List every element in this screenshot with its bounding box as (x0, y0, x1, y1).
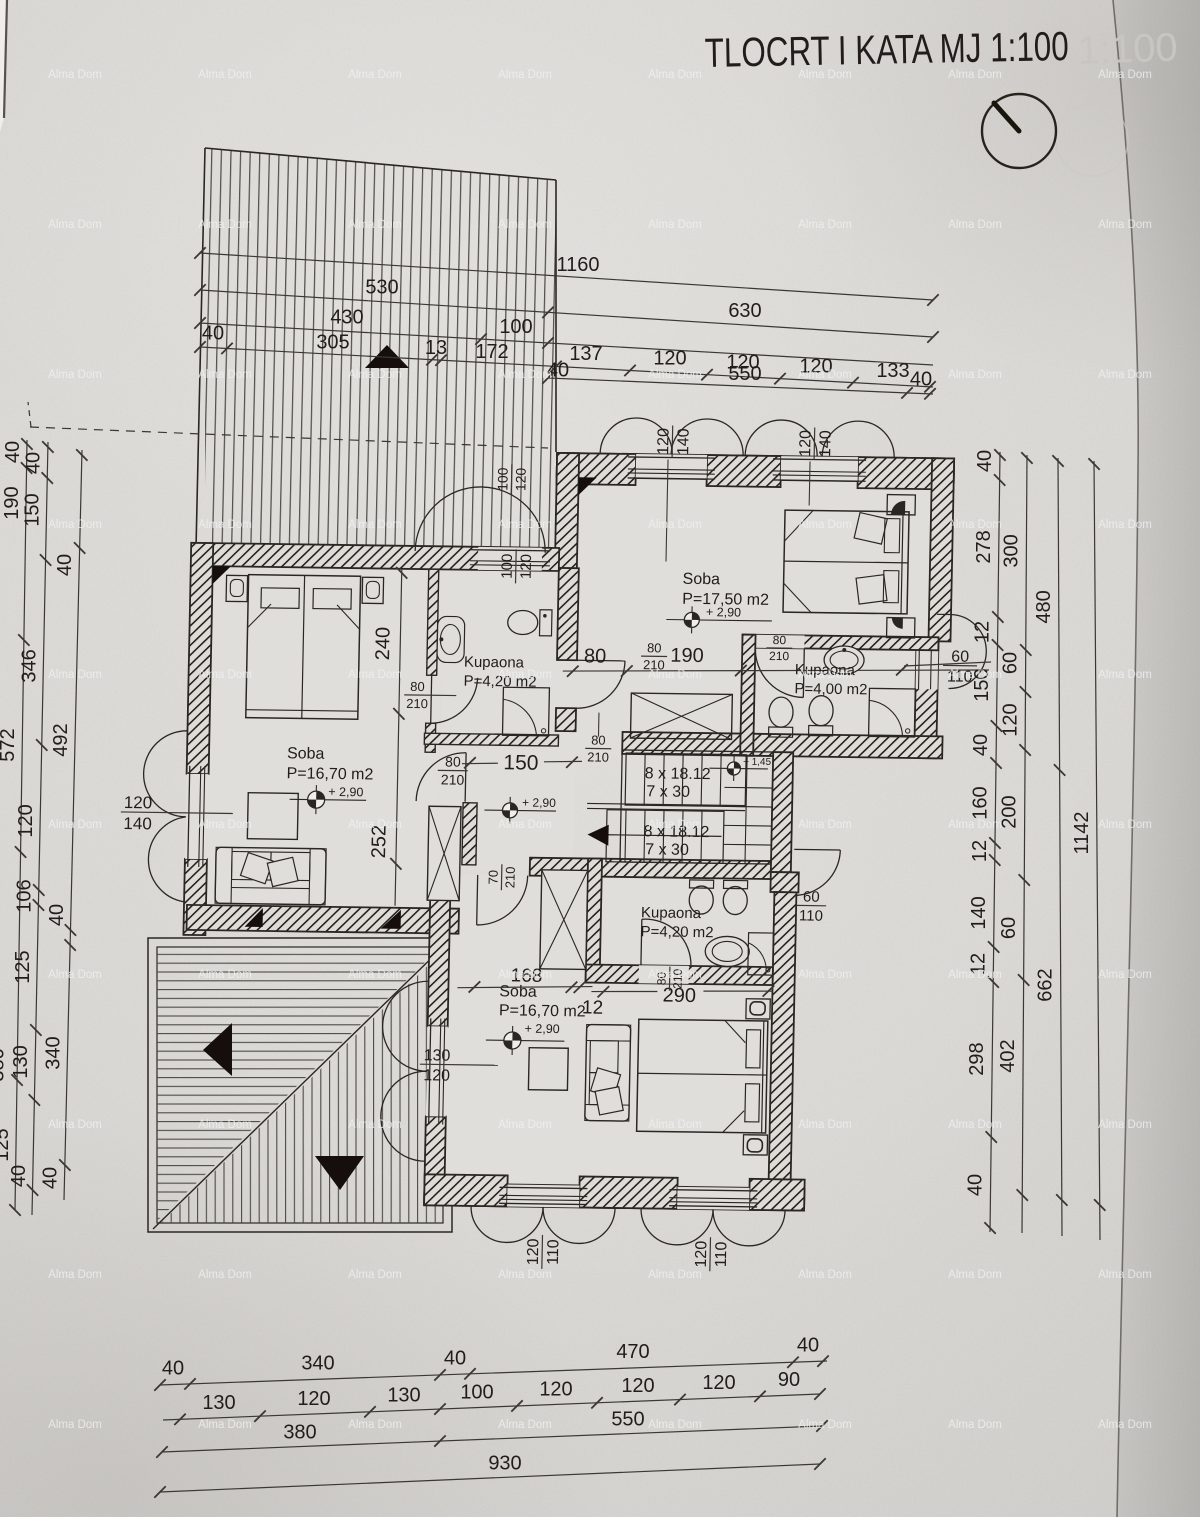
svg-text:120: 120 (512, 467, 528, 491)
svg-text:Alma Dom: Alma Dom (198, 1269, 252, 1281)
svg-text:Alma Dom: Alma Dom (348, 969, 402, 981)
svg-text:140: 140 (968, 896, 990, 929)
svg-text:120: 120 (124, 793, 153, 812)
svg-text:140: 140 (123, 814, 152, 833)
svg-text:172: 172 (475, 341, 508, 363)
svg-text:40: 40 (40, 1167, 62, 1189)
svg-text:40: 40 (202, 323, 224, 345)
svg-text:Alma Dom: Alma Dom (798, 69, 852, 81)
svg-text:130: 130 (202, 1392, 235, 1414)
svg-text:80: 80 (584, 645, 607, 667)
svg-text:80: 80 (773, 633, 787, 647)
svg-text:7 x 30: 7 x 30 (645, 841, 689, 859)
svg-text:Alma Dom: Alma Dom (798, 519, 852, 531)
svg-text:125: 125 (0, 1128, 13, 1161)
svg-text:Alma Dom: Alma Dom (48, 1119, 102, 1131)
svg-text:Alma Dom: Alma Dom (1098, 819, 1152, 831)
svg-text:Alma Dom: Alma Dom (948, 1269, 1002, 1281)
svg-text:125: 125 (12, 950, 34, 983)
svg-text:130: 130 (424, 1047, 451, 1064)
svg-text:305: 305 (316, 331, 349, 353)
svg-text:Alma Dom: Alma Dom (48, 969, 102, 981)
svg-text:550: 550 (728, 363, 761, 385)
svg-text:120: 120 (423, 1067, 450, 1084)
svg-text:Alma Dom: Alma Dom (48, 519, 102, 531)
svg-text:340: 340 (301, 1352, 334, 1374)
svg-text:210: 210 (441, 771, 465, 787)
svg-text:Alma Dom: Alma Dom (648, 1269, 702, 1281)
svg-text:346: 346 (18, 649, 40, 682)
svg-text:Alma Dom: Alma Dom (198, 519, 252, 531)
svg-text:Alma Dom: Alma Dom (798, 1119, 852, 1131)
svg-text:Alma Dom: Alma Dom (48, 819, 102, 831)
svg-text:480: 480 (1033, 590, 1055, 623)
svg-text:Alma Dom: Alma Dom (348, 69, 402, 81)
svg-text:Alma Dom: Alma Dom (198, 369, 252, 381)
svg-text:40: 40 (970, 734, 992, 756)
svg-text:Soba: Soba (499, 983, 537, 1001)
svg-text:Alma Dom: Alma Dom (648, 1419, 702, 1431)
svg-text:190: 190 (1, 486, 23, 519)
svg-text:TLOCRT I KATA MJ 1:100: TLOCRT I KATA MJ 1:100 (704, 23, 1069, 76)
svg-text:120: 120 (15, 804, 37, 837)
svg-text:160: 160 (970, 786, 992, 819)
svg-text:210: 210 (587, 749, 609, 764)
svg-text:Alma Dom: Alma Dom (1098, 69, 1152, 81)
svg-text:120: 120 (999, 703, 1021, 736)
svg-text:Alma Dom: Alma Dom (48, 369, 102, 381)
svg-text:13: 13 (425, 337, 447, 359)
svg-text:100: 100 (499, 554, 516, 579)
svg-text:40: 40 (974, 450, 996, 472)
svg-text:Alma Dom: Alma Dom (198, 969, 252, 981)
svg-text:278: 278 (973, 530, 995, 563)
svg-text:Alma Dom: Alma Dom (48, 1269, 102, 1281)
svg-text:Alma Dom: Alma Dom (498, 369, 552, 381)
svg-text:120: 120 (297, 1388, 330, 1410)
svg-text:Alma Dom: Alma Dom (348, 369, 402, 381)
svg-text:Alma Dom: Alma Dom (48, 219, 102, 231)
svg-text:1:100: 1:100 (1077, 26, 1179, 73)
svg-text:133: 133 (876, 360, 909, 382)
svg-text:Alma Dom: Alma Dom (948, 1119, 1002, 1131)
svg-text:110: 110 (713, 1241, 731, 1267)
svg-text:Soba: Soba (682, 571, 720, 589)
svg-text:Alma Dom: Alma Dom (498, 1269, 552, 1281)
svg-text:662: 662 (1035, 968, 1057, 1001)
svg-text:298: 298 (966, 1042, 988, 1075)
svg-text:137: 137 (569, 343, 602, 365)
svg-text:930: 930 (488, 1452, 521, 1474)
svg-text:Alma Dom: Alma Dom (198, 1119, 252, 1131)
svg-text:Alma Dom: Alma Dom (648, 519, 702, 531)
svg-text:Alma Dom: Alma Dom (498, 669, 552, 681)
svg-text:40: 40 (8, 1165, 30, 1187)
svg-text:240: 240 (372, 627, 395, 661)
svg-text:120: 120 (655, 428, 673, 455)
svg-text:80: 80 (647, 640, 662, 655)
svg-text:12: 12 (969, 840, 991, 862)
svg-text:1160: 1160 (556, 254, 599, 276)
svg-text:80: 80 (410, 679, 425, 694)
svg-text:200: 200 (999, 795, 1021, 828)
svg-text:70: 70 (485, 870, 500, 885)
svg-text:Alma Dom: Alma Dom (48, 669, 102, 681)
svg-text:120: 120 (797, 430, 815, 457)
svg-text:Alma Dom: Alma Dom (1098, 369, 1152, 381)
svg-text:40: 40 (965, 1174, 987, 1196)
svg-text:Alma Dom: Alma Dom (948, 69, 1002, 81)
svg-text:8 x 18.12: 8 x 18.12 (645, 765, 711, 783)
svg-text:Alma Dom: Alma Dom (948, 819, 1002, 831)
svg-text:Alma Dom: Alma Dom (48, 69, 102, 81)
svg-text:P=16,70 m2: P=16,70 m2 (286, 765, 373, 783)
svg-text:530: 530 (365, 277, 398, 299)
svg-text:Alma Dom: Alma Dom (948, 669, 1002, 681)
svg-text:380: 380 (0, 1048, 8, 1081)
svg-text:1142: 1142 (1071, 811, 1093, 854)
svg-text:110: 110 (545, 1239, 563, 1265)
svg-text:Alma Dom: Alma Dom (348, 519, 402, 531)
svg-text:40: 40 (46, 904, 68, 926)
svg-text:Alma Dom: Alma Dom (1098, 669, 1152, 681)
svg-text:340: 340 (43, 1036, 65, 1069)
svg-text:100: 100 (494, 467, 510, 491)
svg-text:P=4,00 m2: P=4,00 m2 (794, 680, 867, 698)
svg-text:40: 40 (23, 452, 45, 474)
svg-text:Soba: Soba (287, 745, 325, 763)
svg-text:120: 120 (693, 1241, 711, 1268)
svg-text:Alma Dom: Alma Dom (648, 1119, 702, 1131)
svg-text:Alma Dom: Alma Dom (948, 219, 1002, 231)
svg-text:40: 40 (910, 369, 932, 391)
svg-text:+ 2,90: + 2,90 (706, 605, 741, 619)
svg-text:Alma Dom: Alma Dom (798, 219, 852, 231)
svg-text:Alma Dom: Alma Dom (648, 369, 702, 381)
svg-text:120: 120 (653, 348, 686, 370)
svg-text:40: 40 (2, 441, 24, 463)
svg-text:Alma Dom: Alma Dom (948, 1419, 1002, 1431)
svg-text:100: 100 (460, 1382, 493, 1404)
svg-text:100: 100 (499, 316, 532, 338)
svg-text:106: 106 (14, 879, 36, 912)
svg-text:Alma Dom: Alma Dom (798, 669, 852, 681)
svg-text:12: 12 (972, 621, 994, 643)
svg-text:Alma Dom: Alma Dom (798, 969, 852, 981)
svg-text:Alma Dom: Alma Dom (798, 369, 852, 381)
svg-text:380: 380 (283, 1422, 316, 1444)
svg-text:Alma Dom: Alma Dom (198, 1419, 252, 1431)
svg-text:300: 300 (1000, 534, 1022, 567)
svg-text:Alma Dom: Alma Dom (198, 69, 252, 81)
svg-text:+ 2,90: + 2,90 (328, 785, 363, 799)
svg-text:Alma Dom: Alma Dom (498, 69, 552, 81)
svg-text:7 x 30: 7 x 30 (646, 783, 690, 801)
svg-text:P=16,70 m2: P=16,70 m2 (499, 1002, 586, 1020)
svg-text:120: 120 (621, 1375, 654, 1397)
svg-text:210: 210 (406, 696, 428, 711)
svg-text:Alma Dom: Alma Dom (498, 969, 552, 981)
svg-text:Alma Dom: Alma Dom (1098, 219, 1152, 231)
svg-text:40: 40 (444, 1347, 466, 1369)
svg-text:+ 1,45: + 1,45 (743, 757, 772, 768)
svg-text:60: 60 (803, 888, 820, 905)
svg-text:Alma Dom: Alma Dom (498, 1419, 552, 1431)
svg-text:Alma Dom: Alma Dom (948, 969, 1002, 981)
svg-text:+ 2,90: + 2,90 (524, 1022, 559, 1036)
svg-text:Alma Dom: Alma Dom (198, 819, 252, 831)
svg-text:Alma Dom: Alma Dom (498, 819, 552, 831)
svg-text:Alma Dom: Alma Dom (348, 1269, 402, 1281)
svg-text:Alma Dom: Alma Dom (348, 1119, 402, 1131)
svg-text:550: 550 (611, 1409, 644, 1431)
svg-text:Alma Dom: Alma Dom (648, 819, 702, 831)
svg-text:40: 40 (797, 1335, 819, 1357)
svg-text:Kupaona: Kupaona (641, 904, 702, 922)
svg-text:Alma Dom: Alma Dom (1098, 969, 1152, 981)
svg-text:140: 140 (817, 430, 835, 457)
svg-text:60: 60 (1000, 652, 1022, 674)
svg-text:Alma Dom: Alma Dom (648, 219, 702, 231)
svg-text:Alma Dom: Alma Dom (198, 669, 252, 681)
svg-text:Alma Dom: Alma Dom (798, 819, 852, 831)
svg-text:572: 572 (0, 728, 19, 761)
svg-text:Alma Dom: Alma Dom (1098, 1269, 1152, 1281)
svg-text:Alma Dom: Alma Dom (198, 219, 252, 231)
svg-text:Alma Dom: Alma Dom (948, 369, 1002, 381)
svg-text:210: 210 (769, 649, 790, 663)
svg-text:492: 492 (50, 723, 72, 756)
svg-text:40: 40 (54, 554, 76, 576)
svg-text:190: 190 (670, 645, 704, 667)
svg-text:Alma Dom: Alma Dom (948, 519, 1002, 531)
svg-text:Alma Dom: Alma Dom (498, 519, 552, 531)
svg-text:Alma Dom: Alma Dom (1098, 1419, 1152, 1431)
svg-text:150: 150 (503, 751, 539, 774)
svg-text:40: 40 (162, 1358, 184, 1380)
svg-text:470: 470 (616, 1341, 649, 1363)
svg-text:Alma Dom: Alma Dom (1098, 519, 1152, 531)
svg-text:+ 2,90: + 2,90 (522, 796, 556, 810)
svg-text:110: 110 (799, 907, 823, 924)
svg-text:Alma Dom: Alma Dom (498, 1119, 552, 1131)
svg-text:Alma Dom: Alma Dom (348, 819, 402, 831)
svg-text:402: 402 (997, 1039, 1019, 1072)
svg-text:130: 130 (10, 1045, 32, 1078)
svg-text:130: 130 (387, 1385, 420, 1407)
svg-text:430: 430 (330, 306, 363, 328)
svg-text:90: 90 (778, 1369, 800, 1391)
svg-text:210: 210 (502, 866, 517, 888)
svg-text:60: 60 (998, 917, 1020, 939)
svg-text:Alma Dom: Alma Dom (498, 219, 552, 231)
svg-text:120: 120 (539, 1378, 572, 1400)
svg-text:Alma Dom: Alma Dom (798, 1419, 852, 1431)
svg-text:Alma Dom: Alma Dom (348, 1419, 402, 1431)
svg-text:Alma Dom: Alma Dom (1098, 1119, 1152, 1131)
svg-text:Alma Dom: Alma Dom (798, 1269, 852, 1281)
svg-text:12: 12 (582, 997, 604, 1018)
svg-text:630: 630 (728, 300, 761, 322)
svg-text:P=4,20 m2: P=4,20 m2 (640, 923, 713, 941)
svg-text:80: 80 (445, 753, 461, 769)
svg-text:Alma Dom: Alma Dom (48, 1419, 102, 1431)
svg-text:120: 120 (525, 1238, 543, 1265)
svg-text:120: 120 (702, 1372, 735, 1394)
svg-text:Alma Dom: Alma Dom (648, 669, 702, 681)
svg-text:Alma Dom: Alma Dom (648, 969, 702, 981)
svg-text:150: 150 (22, 493, 44, 526)
svg-text:Alma Dom: Alma Dom (348, 669, 402, 681)
svg-text:140: 140 (675, 428, 693, 455)
svg-text:Alma Dom: Alma Dom (348, 219, 402, 231)
svg-text:Alma Dom: Alma Dom (648, 69, 702, 81)
svg-text:120: 120 (518, 554, 535, 579)
